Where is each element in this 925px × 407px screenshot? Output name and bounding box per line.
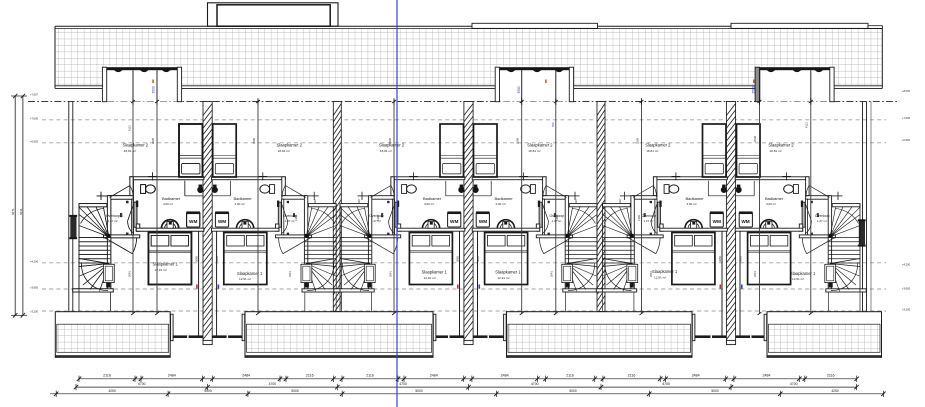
svg-text:+6,500: +6,500 [30, 140, 39, 144]
svg-text:+6,500: +6,500 [902, 138, 911, 142]
svg-text:4,60 m²: 4,60 m² [687, 202, 697, 206]
svg-text:2116: 2116 [366, 374, 374, 378]
svg-text:4700: 4700 [269, 382, 277, 386]
svg-text:1340: 1340 [376, 215, 380, 221]
svg-text:+3,200: +3,200 [30, 310, 39, 314]
svg-text:5000: 5000 [204, 389, 212, 393]
svg-text:Badkamer: Badkamer [495, 196, 514, 201]
svg-text:WM: WM [741, 219, 749, 224]
svg-text:18,81 m²: 18,81 m² [646, 149, 658, 153]
svg-text:Badkamer: Badkamer [234, 196, 253, 201]
svg-text:18,81 m²: 18,81 m² [380, 149, 392, 153]
svg-text:3500: 3500 [752, 86, 756, 93]
svg-text:+3,650: +3,650 [902, 287, 911, 291]
svg-text:2116: 2116 [566, 374, 574, 378]
svg-text:12,91 m²: 12,91 m² [424, 276, 436, 280]
svg-text:5000: 5000 [569, 389, 577, 393]
svg-text:2116: 2116 [306, 374, 314, 378]
svg-text:+3,650: +3,650 [30, 286, 39, 290]
svg-text:12,91 m²: 12,91 m² [792, 277, 804, 281]
svg-text:4250: 4250 [108, 389, 116, 393]
svg-text:Overloop: Overloop [106, 214, 121, 218]
svg-text:3065: 3065 [215, 256, 219, 262]
svg-text:Slaapkamer 1: Slaapkamer 1 [652, 269, 678, 274]
svg-text:18,81 m²: 18,81 m² [769, 149, 781, 153]
svg-text:18,81 m²: 18,81 m² [124, 149, 136, 153]
svg-text:2508: 2508 [635, 138, 639, 144]
svg-text:WM: WM [450, 219, 458, 224]
svg-text:3500: 3500 [152, 86, 156, 93]
svg-text:6631: 6631 [19, 208, 23, 215]
svg-text:1340: 1340 [637, 215, 641, 221]
svg-text:2116: 2116 [103, 374, 111, 378]
svg-text:Badkamer: Badkamer [162, 196, 181, 201]
svg-text:3500: 3500 [517, 86, 521, 93]
svg-text:3065: 3065 [195, 256, 199, 262]
svg-text:2041: 2041 [649, 271, 653, 277]
svg-text:18,81 m²: 18,81 m² [278, 149, 290, 153]
svg-text:Slaapkamer 2: Slaapkamer 2 [527, 142, 553, 147]
svg-text:+4,200: +4,200 [902, 263, 911, 267]
svg-text:4113: 4113 [805, 122, 809, 128]
svg-text:WM: WM [189, 219, 197, 224]
svg-text:1340: 1340 [555, 215, 559, 221]
svg-text:Slaapkamer 1: Slaapkamer 1 [790, 271, 816, 276]
svg-text:Slaapkamer 1: Slaapkamer 1 [495, 270, 521, 275]
svg-text:5000: 5000 [711, 389, 719, 393]
svg-text:927: 927 [574, 198, 578, 203]
svg-text:Overloop: Overloop [815, 214, 830, 218]
svg-text:4,60 m²: 4,60 m² [424, 202, 434, 206]
svg-text:+7,657: +7,657 [30, 93, 39, 97]
svg-text:Slaapkamer 2: Slaapkamer 2 [645, 142, 671, 147]
svg-text:1,47 m²: 1,47 m² [285, 219, 295, 223]
svg-text:2041: 2041 [753, 271, 757, 277]
svg-text:WM: WM [479, 219, 487, 224]
svg-text:12,91 m²: 12,91 m² [654, 275, 666, 279]
svg-text:+8,000: +8,000 [902, 89, 911, 93]
svg-text:Slaapkamer 1: Slaapkamer 1 [237, 271, 263, 276]
svg-text:927: 927 [313, 198, 317, 203]
svg-text:2508: 2508 [151, 138, 155, 144]
svg-text:5000: 5000 [291, 389, 299, 393]
svg-text:Slaapkamer 2: Slaapkamer 2 [277, 142, 303, 147]
svg-text:2508: 2508 [252, 138, 256, 144]
svg-text:Slaapkamer 1: Slaapkamer 1 [422, 270, 448, 275]
svg-text:2041: 2041 [288, 271, 292, 277]
svg-text:2116: 2116 [628, 374, 636, 378]
svg-text:4700: 4700 [399, 382, 407, 386]
svg-text:5000: 5000 [415, 389, 423, 393]
svg-text:927: 927 [618, 198, 622, 203]
svg-text:+7,000: +7,000 [30, 117, 39, 121]
svg-text:2508: 2508 [516, 138, 520, 144]
svg-text:2484: 2484 [501, 374, 509, 378]
svg-text:2508: 2508 [388, 138, 392, 144]
svg-text:4,60 m²: 4,60 m² [766, 202, 776, 206]
svg-text:Slaapkamer 1: Slaapkamer 1 [153, 262, 179, 267]
svg-text:WM: WM [218, 219, 226, 224]
svg-text:Slaapkamer 2: Slaapkamer 2 [768, 142, 794, 147]
svg-text:3065: 3065 [456, 256, 460, 262]
svg-text:2484: 2484 [763, 374, 771, 378]
svg-text:6671: 6671 [11, 208, 15, 215]
svg-text:2041: 2041 [128, 271, 132, 277]
svg-text:4700: 4700 [662, 382, 670, 386]
svg-text:3065: 3065 [738, 256, 742, 262]
svg-text:2484: 2484 [168, 374, 176, 378]
svg-text:3065: 3065 [718, 256, 722, 262]
svg-text:4700: 4700 [790, 382, 798, 386]
svg-text:+4,200: +4,200 [30, 260, 39, 264]
svg-text:4,60 m²: 4,60 m² [496, 202, 506, 206]
svg-text:Badkamer: Badkamer [686, 196, 705, 201]
svg-text:1,47 m²: 1,47 m² [817, 219, 827, 223]
svg-text:12,91 m²: 12,91 m² [497, 276, 509, 280]
svg-text:Badkamer: Badkamer [765, 196, 784, 201]
svg-text:4,60 m²: 4,60 m² [163, 202, 173, 206]
svg-text:4250: 4250 [831, 389, 839, 393]
svg-text:1,47 m²: 1,47 m² [644, 219, 654, 223]
svg-text:+7,000: +7,000 [902, 116, 911, 120]
svg-text:4113: 4113 [128, 125, 132, 131]
svg-text:Slaapkamer 2: Slaapkamer 2 [123, 142, 149, 147]
svg-text:12,91 m²: 12,91 m² [155, 268, 167, 272]
svg-text:18,81 m²: 18,81 m² [528, 149, 540, 153]
svg-text:4,60 m²: 4,60 m² [235, 202, 245, 206]
svg-text:Badkamer: Badkamer [423, 196, 442, 201]
svg-text:2508: 2508 [753, 136, 757, 142]
svg-text:12,91 m²: 12,91 m² [239, 277, 251, 281]
svg-text:4700: 4700 [138, 382, 146, 386]
svg-text:2484: 2484 [692, 374, 700, 378]
svg-text:450: 450 [551, 122, 555, 127]
svg-text:1340: 1340 [294, 215, 298, 221]
svg-text:1,47 m²: 1,47 m² [108, 219, 118, 223]
svg-text:2484: 2484 [430, 374, 438, 378]
svg-text:Overloop: Overloop [642, 214, 657, 218]
svg-text:2116: 2116 [827, 374, 835, 378]
svg-text:2041: 2041 [389, 271, 393, 277]
svg-text:4700: 4700 [531, 382, 539, 386]
svg-text:2484: 2484 [242, 374, 250, 378]
svg-text:3065: 3065 [476, 256, 480, 262]
svg-text:2041: 2041 [550, 271, 554, 277]
svg-text:WM: WM [713, 219, 721, 224]
svg-text:927: 927 [357, 198, 361, 203]
svg-text:Slaapkamer 2: Slaapkamer 2 [379, 142, 405, 147]
svg-text:+3,200: +3,200 [902, 308, 911, 312]
